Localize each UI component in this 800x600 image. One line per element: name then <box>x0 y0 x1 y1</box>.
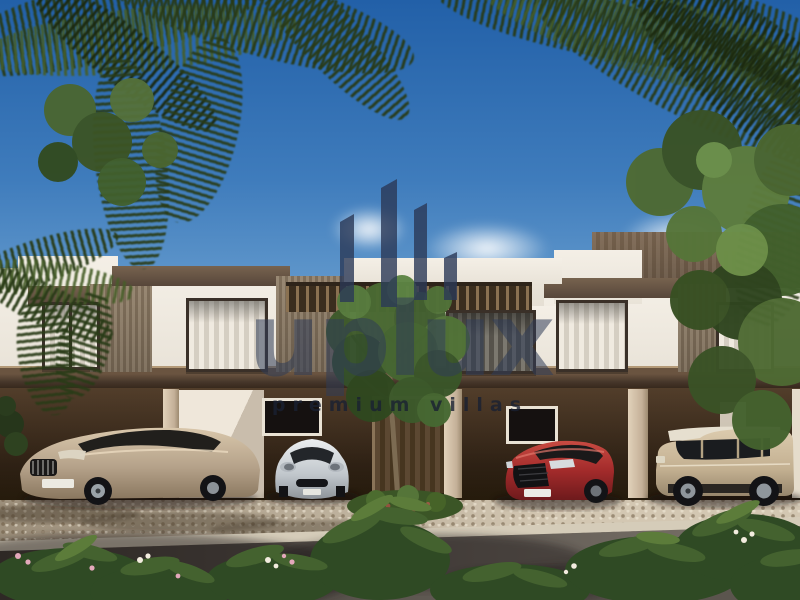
watermark-brand-text: uplux <box>0 290 800 392</box>
watermark-tagline-text: premium villas <box>0 394 800 416</box>
luxury-sedan <box>20 428 260 505</box>
luxury-suv <box>656 427 794 507</box>
sports-car <box>275 439 349 499</box>
townhouse-render-photo: uplux premium villas <box>0 0 800 600</box>
performance-sedan <box>506 441 614 503</box>
